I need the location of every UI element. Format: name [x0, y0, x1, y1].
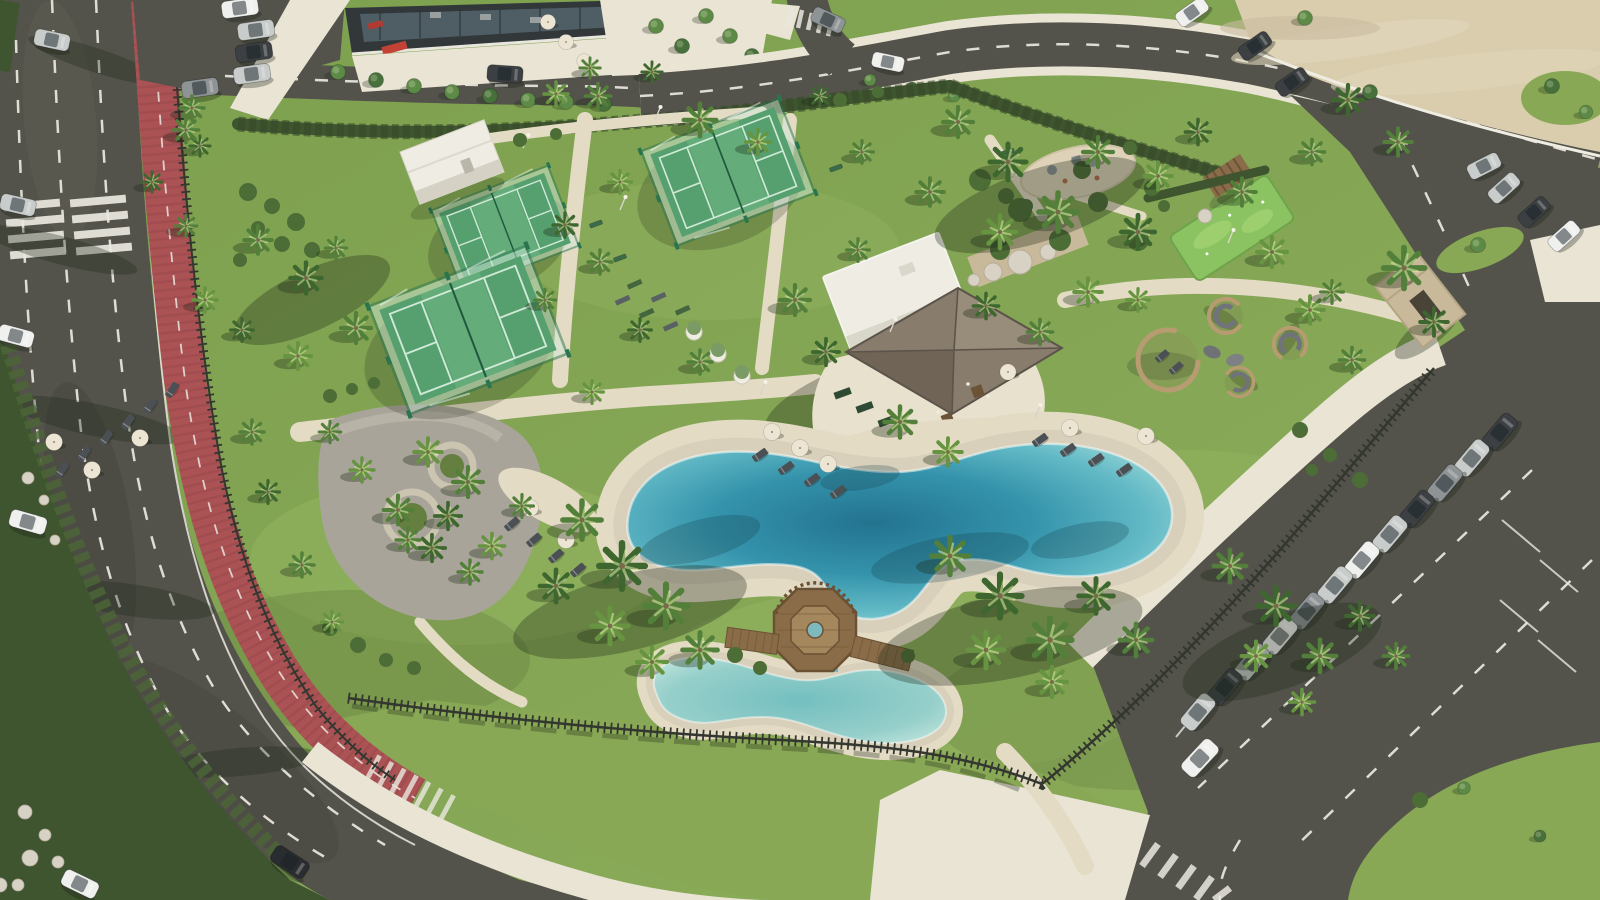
bush: [1412, 792, 1428, 808]
scene-canvas: Sunny aerial view of a seaside resort am…: [0, 0, 1600, 900]
aerial-resort-scene: Sunny aerial view of a seaside resort am…: [0, 0, 1600, 900]
island-spa: [807, 622, 823, 638]
boulder: [1198, 209, 1212, 223]
